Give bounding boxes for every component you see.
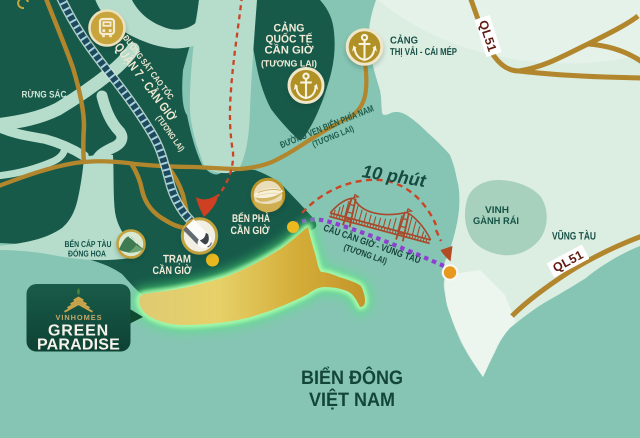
svg-text:VIỆT NAM: VIỆT NAM bbox=[309, 388, 395, 411]
svg-text:GÀNH RÁI: GÀNH RÁI bbox=[473, 215, 519, 227]
svg-text:CẦN GIỜ: CẦN GIỜ bbox=[231, 224, 270, 237]
svg-text:BẾN PHÀ: BẾN PHÀ bbox=[232, 212, 270, 225]
svg-text:BẾN CÁP TÀU: BẾN CÁP TÀU bbox=[65, 239, 112, 249]
svg-text:VINH: VINH bbox=[485, 205, 509, 216]
svg-text:PARADISE: PARADISE bbox=[37, 337, 120, 354]
svg-text:ĐÓNG HOA: ĐÓNG HOA bbox=[68, 249, 106, 259]
svg-text:TRẠM: TRẠM bbox=[163, 254, 191, 266]
svg-text:BIỂN ĐÔNG: BIỂN ĐÔNG bbox=[301, 366, 403, 389]
svg-text:THỊ VẢI - CÁI MÉP: THỊ VẢI - CÁI MÉP bbox=[390, 46, 457, 58]
svg-text:CẦN GIỜ: CẦN GIỜ bbox=[153, 264, 192, 277]
svg-text:VINHOMES: VINHOMES bbox=[56, 313, 102, 322]
svg-text:CẢNG: CẢNG bbox=[390, 35, 418, 47]
svg-text:(TƯƠNG LAI): (TƯƠNG LAI) bbox=[261, 59, 317, 69]
svg-text:RỪNG SÁC: RỪNG SÁC bbox=[22, 89, 67, 101]
svg-text:VŨNG TÀU: VŨNG TÀU bbox=[552, 230, 596, 243]
svg-text:CẦN GIỜ: CẦN GIỜ bbox=[265, 44, 315, 57]
